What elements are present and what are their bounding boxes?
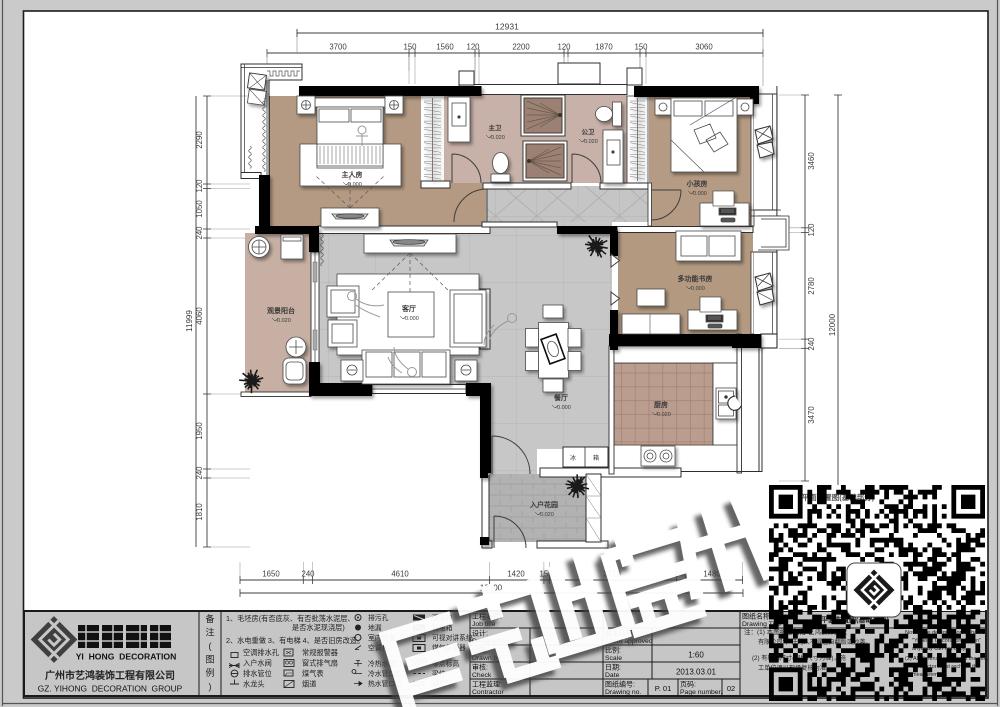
svg-text:比例:: 比例: [605, 646, 621, 655]
svg-text:-0.020: -0.020 [538, 512, 554, 518]
svg-text:客厅: 客厅 [401, 304, 416, 313]
svg-text:图纸名称:: 图纸名称: [742, 612, 772, 621]
svg-text:厨房: 厨房 [654, 400, 668, 409]
svg-text:2290: 2290 [195, 131, 204, 149]
svg-text:空调排水孔: 空调排水孔 [243, 648, 279, 657]
svg-text:Scale: Scale [605, 655, 622, 662]
svg-text:多功能书房: 多功能书房 [678, 274, 713, 283]
svg-text:地漏: 地漏 [368, 623, 382, 632]
svg-text:1420: 1420 [507, 570, 525, 579]
svg-text:可视对讲系统: 可视对讲系统 [432, 633, 473, 642]
svg-text:入户花园: 入户花园 [529, 500, 558, 509]
svg-text:是否水泥现浇层): 是否水泥现浇层) [292, 623, 345, 632]
svg-text:11999: 11999 [185, 310, 194, 332]
svg-text:150: 150 [403, 43, 417, 52]
svg-text:3460: 3460 [807, 152, 816, 170]
svg-text:1870: 1870 [595, 43, 613, 52]
svg-text:-0.000: -0.000 [691, 191, 707, 197]
svg-text:图纸编号:: 图纸编号: [605, 680, 635, 689]
svg-text:1560: 1560 [436, 43, 454, 52]
svg-text:例: 例 [205, 667, 214, 678]
svg-text:-0.020: -0.020 [489, 135, 505, 141]
svg-text:日期:: 日期: [605, 664, 621, 672]
svg-text:主人房: 主人房 [342, 170, 363, 179]
svg-text:4610: 4610 [391, 570, 409, 579]
svg-text:120: 120 [557, 43, 571, 52]
svg-text:120: 120 [807, 223, 816, 237]
svg-text:箱: 箱 [593, 454, 599, 462]
svg-text:Drawing no.: Drawing no. [605, 689, 641, 696]
svg-text:-0.000: -0.000 [403, 316, 419, 322]
svg-text:YI HONG DECORATION: YI HONG DECORATION [76, 652, 177, 662]
svg-text:240: 240 [195, 466, 204, 480]
svg-text:GZ. YIHONG DECORATION GROUP: GZ. YIHONG DECORATION GROUP [38, 684, 183, 694]
svg-text:窗式排气扇: 窗式排气扇 [302, 659, 338, 668]
svg-text:3060: 3060 [695, 43, 713, 52]
svg-text:图: 图 [205, 655, 214, 665]
svg-text:1、毛坯房(有否底灰、有否批荡水泥层、: 1、毛坯房(有否底灰、有否批荡水泥层、 [226, 614, 355, 623]
svg-text:): ) [209, 682, 212, 692]
svg-text:餐厅: 餐厅 [553, 393, 568, 402]
svg-text:240: 240 [195, 226, 204, 240]
svg-text:排水管位: 排水管位 [243, 669, 272, 678]
svg-text:煤气表: 煤气表 [302, 669, 324, 678]
svg-text:水龙头: 水龙头 [243, 680, 265, 689]
svg-text:2、水电重做 3、有电梯 4、是否旧房改造。: 2、水电重做 3、有电梯 4、是否旧房改造。 [226, 636, 364, 645]
svg-text:1:60: 1:60 [688, 651, 704, 660]
svg-text:公卫: 公卫 [582, 128, 596, 136]
svg-text:2780: 2780 [807, 277, 816, 295]
svg-text:1950: 1950 [195, 422, 204, 440]
svg-text:(: ( [209, 641, 212, 651]
svg-text:Page number.: Page number. [680, 689, 722, 696]
svg-text:3470: 3470 [807, 406, 816, 424]
svg-text:-0.020: -0.020 [275, 318, 291, 324]
svg-text:2200: 2200 [512, 43, 530, 52]
svg-text:12931: 12931 [495, 22, 519, 32]
svg-text:120: 120 [466, 43, 480, 52]
svg-text:150: 150 [634, 43, 648, 52]
svg-text:120: 120 [195, 179, 204, 193]
svg-text:Drawn by: Drawn by [472, 655, 501, 662]
svg-text:观景阳台: 观景阳台 [267, 306, 295, 315]
svg-text:1810: 1810 [195, 503, 204, 521]
svg-text:-0.000: -0.000 [555, 405, 571, 411]
svg-text:Job title: Job title [472, 621, 496, 628]
svg-text:02: 02 [727, 684, 735, 693]
svg-text:1050: 1050 [195, 200, 204, 218]
svg-text:排污孔: 排污孔 [368, 613, 389, 622]
svg-text:-0.000: -0.000 [346, 182, 362, 188]
svg-text:4060: 4060 [195, 307, 204, 325]
svg-text:设计:: 设计: [472, 629, 488, 638]
svg-text:入户水阀: 入户水阀 [243, 659, 272, 668]
svg-text:3700: 3700 [329, 43, 347, 52]
svg-text:240: 240 [301, 570, 315, 579]
svg-text:Check: Check [472, 672, 492, 679]
svg-text:常规报警器: 常规报警器 [302, 648, 338, 657]
svg-text:2013.03.01: 2013.03.01 [676, 668, 717, 677]
svg-text:1650: 1650 [262, 570, 280, 579]
svg-text:注: 注 [205, 627, 214, 638]
svg-text:烟道: 烟道 [302, 680, 316, 689]
svg-text:1480: 1480 [703, 570, 721, 579]
svg-text:审核:: 审核: [472, 663, 488, 672]
svg-text:Date: Date [605, 672, 620, 679]
svg-text:-0.020: -0.020 [655, 412, 671, 418]
svg-text:12000: 12000 [828, 313, 837, 336]
svg-text:P. 01: P. 01 [655, 684, 672, 693]
svg-text:-0.000: -0.000 [689, 286, 705, 292]
svg-text:工程监理:: 工程监理: [472, 680, 502, 689]
svg-text:备: 备 [205, 613, 214, 624]
svg-text:Contractor: Contractor [472, 689, 504, 696]
svg-text:主卫: 主卫 [489, 123, 503, 132]
svg-text:冰: 冰 [570, 454, 576, 462]
svg-text:240: 240 [807, 337, 816, 351]
svg-text:小孩房: 小孩房 [686, 179, 708, 188]
svg-text:-0.020: -0.020 [582, 139, 598, 145]
svg-text:广州市艺鸿装饰工程有限公司: 广州市艺鸿装饰工程有限公司 [45, 669, 175, 682]
svg-text:页码:: 页码: [680, 681, 696, 689]
